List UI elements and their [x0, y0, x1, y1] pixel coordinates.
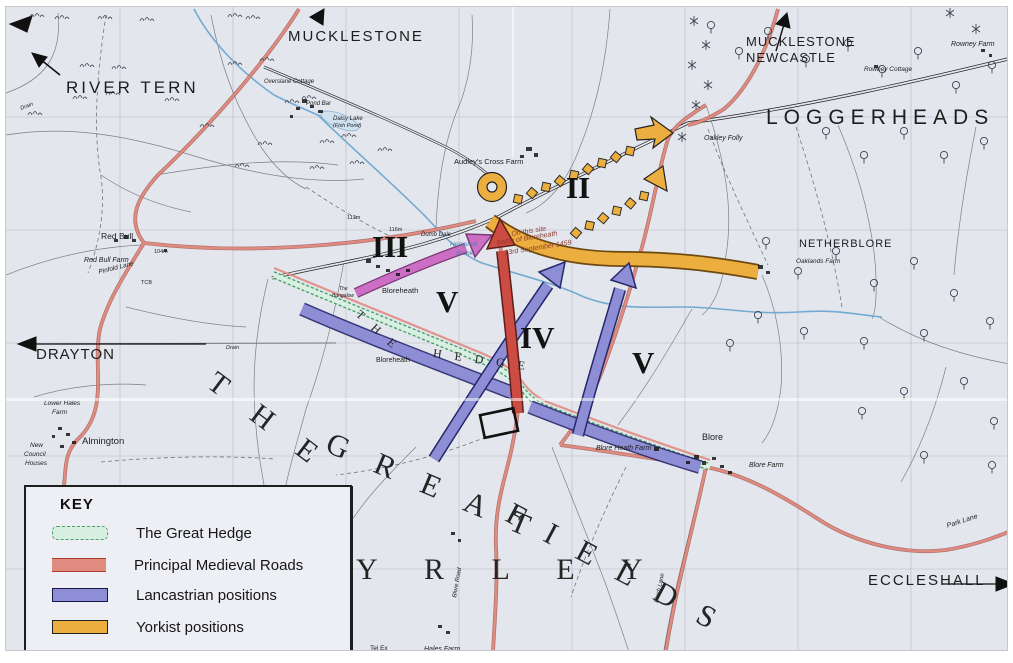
building-icon — [874, 65, 878, 68]
building-icon — [386, 269, 390, 272]
conifer-icon — [702, 40, 710, 50]
march-square-icon — [612, 206, 621, 215]
building-icon — [989, 54, 992, 57]
marsh-tuft-icon — [165, 98, 179, 102]
tree-icon — [980, 137, 987, 149]
key-title: KEY — [60, 496, 94, 513]
lancastrian-swatch-icon — [52, 588, 108, 602]
building-icon — [446, 631, 450, 634]
march-square-icon — [625, 146, 634, 155]
mucklestone-road-arrow-icon — [310, 9, 324, 25]
tree-icon — [990, 417, 997, 429]
tree-icon — [802, 55, 809, 67]
yorkist-band — [490, 221, 758, 272]
lancastrian-bands — [302, 309, 700, 467]
building-icon — [66, 433, 70, 436]
conifer-icon — [972, 24, 980, 34]
building-icon — [720, 465, 724, 468]
marsh-tuft-icon — [106, 92, 120, 96]
building-icon — [534, 153, 538, 157]
building-icon — [981, 49, 985, 52]
key-row-yorkist: Yorkist positions — [26, 615, 350, 639]
tree-icon — [986, 317, 993, 329]
conifer-icon — [946, 8, 954, 18]
marsh-tuft-icon — [310, 166, 324, 170]
tree-icon — [920, 329, 927, 341]
marsh-tuft-icon — [140, 18, 154, 22]
conifer-icon — [688, 60, 696, 70]
building-icon — [458, 539, 461, 542]
building-icon — [302, 99, 307, 103]
building-icon — [132, 239, 136, 242]
tree-icon — [800, 327, 807, 339]
marsh-tuft-icon — [302, 96, 316, 100]
tree-icon — [910, 257, 917, 269]
march-square-icon — [639, 191, 648, 200]
building-icon — [318, 110, 323, 113]
tree-icon — [900, 127, 907, 139]
turnpike-road — [264, 57, 1008, 278]
building-icon — [124, 235, 128, 239]
conifer-icon — [690, 16, 698, 26]
tree-icon — [762, 237, 769, 249]
marsh-tuft-icon — [73, 96, 87, 100]
marsh-tuft-icon — [320, 140, 334, 144]
building-icon — [114, 239, 118, 242]
march-square-icon — [625, 198, 636, 209]
marsh-tuft-icon — [112, 66, 126, 70]
tree-icon — [914, 47, 921, 59]
building-icon — [60, 445, 64, 448]
map-key: KEY The Great Hedge Principal Medieval R… — [24, 485, 352, 651]
building-icon — [310, 105, 314, 108]
tree-icon — [860, 151, 867, 163]
building-icon — [451, 532, 455, 535]
tree-icon — [940, 151, 947, 163]
marsh-tuft-icon — [350, 161, 364, 165]
building-icon — [406, 269, 410, 272]
building-icon — [702, 461, 706, 465]
building-icon — [728, 471, 732, 474]
march-square-icon — [597, 158, 606, 167]
key-row-lancastrian: Lancastrian positions — [26, 583, 350, 607]
building-icon — [686, 461, 690, 464]
tree-icon — [988, 461, 995, 473]
marsh-tuft-icon — [98, 16, 112, 20]
key-label: Principal Medieval Roads — [134, 557, 303, 574]
marsh-tuft-icon — [342, 134, 356, 138]
tree-icon — [950, 289, 957, 301]
tree-icon — [860, 337, 867, 349]
road-swatch-icon — [52, 558, 106, 572]
tree-icon — [707, 21, 714, 33]
conifer-icon — [704, 80, 712, 90]
hedge-swatch-icon — [52, 526, 108, 540]
key-label: Yorkist positions — [136, 619, 244, 636]
building-icon — [366, 259, 371, 263]
eccleshall-arrow-icon — [996, 577, 1008, 591]
tree-icon — [878, 65, 885, 77]
marsh-tuft-icon — [258, 142, 272, 146]
building-icon — [164, 249, 167, 252]
tree-icon — [754, 311, 761, 323]
audleys-cross-marker — [478, 173, 507, 202]
marsh-tuft-icon — [28, 112, 42, 116]
building-icon — [758, 265, 763, 269]
building-icon — [526, 147, 532, 151]
tree-icon — [960, 377, 967, 389]
yorkist-swatch-icon — [52, 620, 108, 634]
tree-icon — [822, 127, 829, 139]
marsh-tuft-icon — [246, 16, 260, 20]
building-icon — [296, 107, 300, 110]
building-icon — [438, 625, 442, 628]
building-icon — [396, 273, 400, 276]
yorkist-march-trail — [513, 146, 648, 238]
marsh-tuft-icon — [80, 64, 94, 68]
tree-icon — [920, 451, 927, 463]
paper-crease — [512, 7, 514, 157]
tree-icon — [952, 81, 959, 93]
building-icon — [72, 441, 76, 444]
march-square-icon — [569, 170, 578, 179]
tree-icon — [858, 407, 865, 419]
tree-icon — [735, 47, 742, 59]
tree-icon — [832, 247, 839, 259]
marsh-tuft-icon — [228, 14, 242, 18]
tree-icon — [726, 339, 733, 351]
building-icon — [654, 447, 659, 451]
building-icon — [58, 427, 62, 430]
key-row-roads: Principal Medieval Roads — [26, 553, 350, 577]
paper-crease — [6, 398, 1007, 401]
marsh-tuft-icon — [378, 148, 392, 152]
key-label: The Great Hedge — [136, 525, 252, 542]
tree-icon — [844, 39, 851, 51]
building-icon — [694, 455, 699, 459]
building-icon — [766, 271, 770, 274]
marsh-tuft-icon — [55, 16, 69, 20]
key-row-hedge: The Great Hedge — [26, 521, 350, 545]
corner-arrow-icon — [10, 16, 32, 32]
march-square-icon — [513, 194, 522, 203]
key-label: Lancastrian positions — [136, 587, 277, 604]
building-icon — [712, 457, 716, 460]
building-icon — [520, 155, 524, 158]
river-tern-arrow-icon — [32, 53, 47, 67]
march-square-icon — [585, 221, 594, 230]
map-screenshot: MUCKLESTONERIVER TERNMUCKLESTONENEWCASTL… — [0, 0, 1013, 663]
battle-map: MUCKLESTONERIVER TERNMUCKLESTONENEWCASTL… — [5, 6, 1008, 651]
drayton-arrow-icon — [18, 337, 36, 351]
march-square-icon — [541, 182, 550, 191]
building-icon — [52, 435, 55, 438]
building-icon — [290, 115, 293, 118]
march-square-icon — [598, 213, 609, 224]
building-icon — [376, 265, 380, 268]
